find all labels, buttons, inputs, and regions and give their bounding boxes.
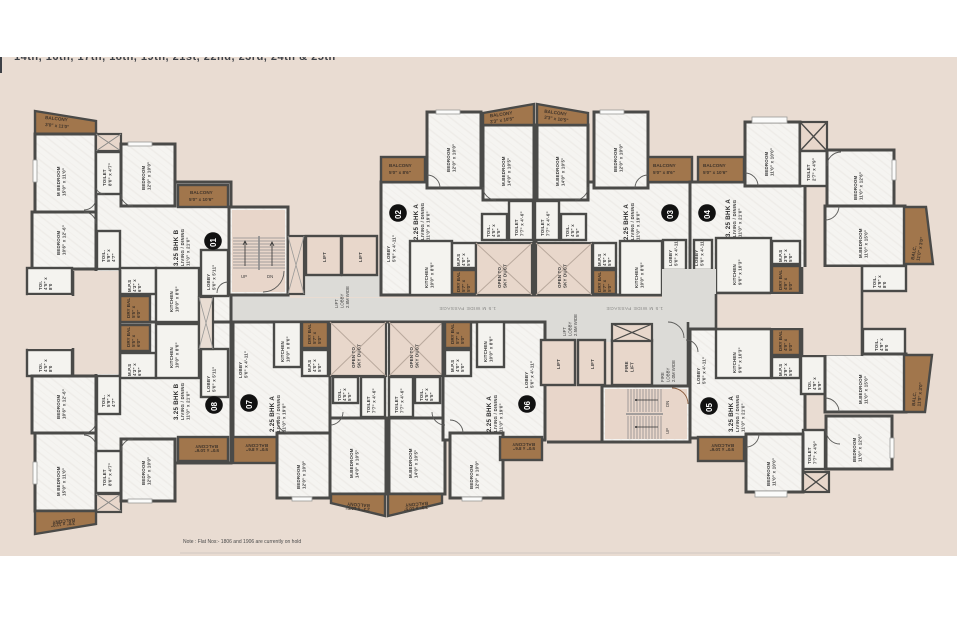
- svg-text:M.BEDROOM14'0" x 10'5": M.BEDROOM14'0" x 10'5": [408, 448, 418, 478]
- svg-text:BEDROOM11'0" x 10'0": BEDROOM11'0" x 10'0": [764, 148, 774, 176]
- svg-text:M.BEDROOM11'0" x 15'0": M.BEDROOM11'0" x 15'0": [858, 228, 868, 258]
- svg-text:LIFT: LIFT: [590, 359, 595, 369]
- svg-text:5'0" x 10'6": 5'0" x 10'6": [710, 447, 734, 452]
- svg-text:5'0" x 10'6": 5'0" x 10'6": [195, 448, 219, 453]
- svg-text:5'0" x 8'6": 5'0" x 8'6": [246, 447, 268, 452]
- svg-text:04: 04: [703, 210, 712, 219]
- svg-text:DN: DN: [665, 401, 670, 407]
- svg-text:05: 05: [705, 403, 714, 412]
- svg-text:M.BEDROOM11'0" x 15'0": M.BEDROOM11'0" x 15'0": [858, 374, 868, 404]
- svg-text:BEDROOM11'0" x 12'6": BEDROOM11'0" x 12'6": [853, 172, 863, 200]
- svg-text:OPEN TOSKY DUCT: OPEN TOSKY DUCT: [497, 264, 507, 288]
- svg-text:M BEDROOM15'0" x 11'0": M BEDROOM15'0" x 11'0": [56, 166, 66, 196]
- svg-text:M BEDROOM15'0" x 11'0": M BEDROOM15'0" x 11'0": [56, 466, 66, 496]
- svg-text:BEDROOM12'0" x 10'0": BEDROOM12'0" x 10'0": [296, 461, 306, 489]
- svg-text:M.BEDROOM14'0" x 10'5": M.BEDROOM14'0" x 10'5": [555, 156, 565, 186]
- svg-text:03: 03: [666, 210, 675, 219]
- svg-text:BEDROOM12'0" x 10'0": BEDROOM12'0" x 10'0": [613, 144, 623, 172]
- svg-text:OPEN TOSKY DUCT: OPEN TOSKY DUCT: [351, 344, 361, 368]
- svg-text:01: 01: [209, 238, 218, 247]
- svg-text:1.5 M WIDE PASSAGE: 1.5 M WIDE PASSAGE: [439, 305, 496, 311]
- svg-text:BEDROOM12'0" x 10'0": BEDROOM12'0" x 10'0": [141, 457, 151, 485]
- svg-text:06: 06: [523, 401, 532, 410]
- svg-text:BALCONY: BALCONY: [703, 163, 726, 168]
- svg-text:BALCONY: BALCONY: [653, 163, 676, 168]
- svg-text:LIFT: LIFT: [358, 252, 363, 262]
- svg-text:OPEN TOSKY DUCT: OPEN TOSKY DUCT: [557, 264, 567, 288]
- svg-text:FIRELIFT: FIRELIFT: [624, 361, 634, 372]
- svg-text:BALCONY: BALCONY: [190, 190, 213, 195]
- svg-text:M.BEDROOM14'0" x 10'5": M.BEDROOM14'0" x 10'5": [349, 448, 359, 478]
- svg-text:08: 08: [210, 402, 219, 411]
- svg-text:Note : Flat Nos:- 1806 and 190: Note : Flat Nos:- 1806 and 1906 are curr…: [183, 539, 301, 545]
- svg-text:BEDROOM12'0" x 10'0": BEDROOM12'0" x 10'0": [446, 144, 456, 172]
- svg-text:BEDROOM12'0" x 10'0": BEDROOM12'0" x 10'0": [141, 162, 151, 190]
- svg-text:5'0" x 10'6": 5'0" x 10'6": [189, 197, 213, 202]
- svg-text:BEDROOM12'0" x 10'0": BEDROOM12'0" x 10'0": [469, 461, 479, 489]
- svg-text:5'0" x 8'6": 5'0" x 8'6": [513, 446, 535, 451]
- svg-text:OPEN TOSKY DUCT: OPEN TOSKY DUCT: [409, 344, 419, 368]
- svg-text:LIFT: LIFT: [322, 252, 327, 262]
- svg-text:LIFT: LIFT: [556, 359, 561, 369]
- svg-text:5'0" x 8'6": 5'0" x 8'6": [389, 170, 411, 175]
- svg-text:UP: UP: [665, 428, 670, 434]
- svg-text:02: 02: [394, 210, 403, 219]
- svg-text:BEDROOM11'0" x 10'0": BEDROOM11'0" x 10'0": [766, 458, 776, 486]
- svg-text:UP: UP: [241, 274, 247, 279]
- svg-text:07: 07: [245, 400, 254, 409]
- svg-text:5'0" x 8'6": 5'0" x 8'6": [653, 170, 675, 175]
- svg-text:DN: DN: [267, 274, 273, 279]
- svg-text:M.BEDROOM14'0" x 10'5": M.BEDROOM14'0" x 10'5": [501, 156, 511, 186]
- svg-text:BALCONY: BALCONY: [389, 163, 412, 168]
- svg-text:1.5 M WIDE PASSAGE: 1.5 M WIDE PASSAGE: [606, 305, 663, 311]
- svg-text:BEDROOM11'0" x 12'6": BEDROOM11'0" x 12'6": [852, 434, 862, 462]
- svg-text:5'0" x 10'6": 5'0" x 10'6": [703, 170, 727, 175]
